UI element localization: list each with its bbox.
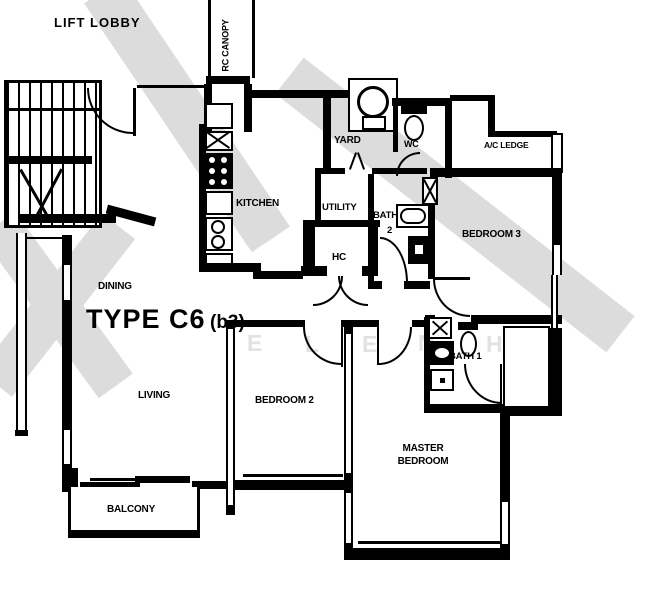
label-yard: YARD [334,136,361,146]
label-master-line2: BEDROOM [383,457,463,467]
wall [424,404,512,413]
label-bath2: BATH [373,211,398,221]
kitchen-cabinet [205,103,233,129]
wall [548,328,562,416]
label-kitchen: KITCHEN [236,199,279,209]
wall [428,205,435,279]
label-master-line1: MASTER [383,444,463,454]
wall [372,168,427,174]
toilet-tank [458,322,478,330]
watermark-letter: E [247,332,262,355]
window [551,133,563,173]
door-arc [338,276,368,306]
toilet-tank [401,103,427,114]
label-bedroom3: BEDROOM 3 [462,230,521,240]
stove-burner [211,235,225,249]
label-utility: UTILITY [322,203,357,213]
label-lift-lobby: LIFT LOBBY [54,16,141,29]
wall [552,168,562,245]
wall-line [27,237,64,239]
canopy-line [208,0,211,78]
basin-pedestal [362,116,386,130]
door-mark [349,152,357,170]
window [552,245,562,275]
door-leaf [500,364,502,404]
unit-type-sub: (b3) [210,312,245,333]
stair-landing [6,156,92,164]
window [62,265,72,300]
wall [226,505,235,515]
window [62,430,72,464]
wall [15,430,28,436]
wall [500,410,510,502]
wall [348,548,510,560]
wall [430,168,562,177]
unit-type-main: TYPE C6 [86,304,206,334]
door-arc [303,327,341,365]
canopy-line [252,0,255,78]
wall [471,315,562,324]
wall [235,480,345,490]
sliding-door-leaf [135,476,190,483]
label-dining: DINING [98,282,132,292]
label-bath2-num: 2 [387,226,392,236]
watermark-letter: H [486,333,503,356]
wall [62,300,72,430]
door-arc [379,327,412,365]
wall [18,214,116,223]
hob-burner [209,168,215,174]
hob-burner [209,179,215,185]
basin-bowl [357,86,389,118]
label-balcony: BALCONY [107,505,155,515]
label-ac-ledge: A/C LEDGE [484,141,528,150]
wall [445,98,452,178]
wall [500,544,510,560]
wall-double [16,233,27,433]
wall-double [344,334,353,473]
watermark-letter: E [362,333,377,356]
stove-burner [211,220,225,234]
shaft [503,326,550,408]
wall [250,90,350,98]
window-line [358,541,500,544]
shower-drain [440,378,445,383]
hob-burner [221,157,227,163]
door-arc [433,279,470,317]
wall [301,266,327,276]
wall [344,320,353,334]
label-hc: HC [331,253,347,263]
label-bath1: BATH 1 [449,352,481,362]
toilet-bowl [404,115,424,141]
floor-plan: E L E N H [0,0,671,600]
hob-burner [221,179,227,185]
wall [315,168,321,226]
wall [62,235,72,265]
bath2-sink [413,243,425,256]
wall [503,406,562,416]
label-bedroom2: BEDROOM 2 [255,396,314,406]
wall [393,106,398,152]
label-living: LIVING [138,391,170,401]
wall [488,95,495,137]
wall [450,95,492,101]
kitchen-counter [205,191,233,215]
wall-double [226,329,235,507]
hob-burner [209,157,215,163]
label-wc: WC [404,140,419,149]
unit-type-title: TYPE C6 (b3) [86,306,245,333]
window [344,493,353,543]
wall [368,226,374,286]
stair-treads [7,83,99,111]
wall-line [137,85,206,88]
label-rc-canopy: RC CANOPY [222,6,231,86]
window [551,275,558,329]
wall [253,271,303,279]
door-arc [464,364,502,404]
wall [199,263,261,272]
window [500,502,510,544]
door-leaf [341,327,343,367]
wall [323,98,331,170]
wall [344,473,353,493]
bathtub-basin [400,208,426,224]
window-line [243,474,343,477]
door-leaf [133,88,136,136]
wall [495,131,557,137]
hob-burner [221,168,227,174]
door-arc [380,237,408,283]
